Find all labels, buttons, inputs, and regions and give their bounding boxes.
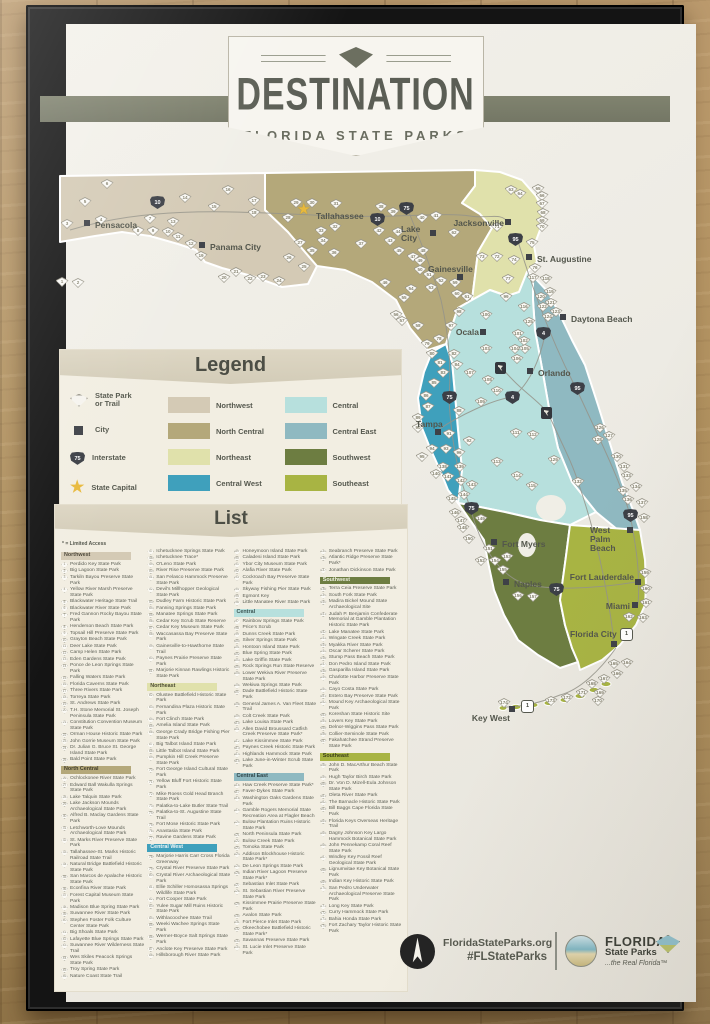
list-item: 5Blackwater Heritage State Trail — [61, 599, 144, 605]
park-name: San Pedro Underwater Archaeological Pres… — [329, 886, 403, 903]
turnpike-shield — [495, 362, 506, 374]
park-name: Cedar Key Museum State Park — [156, 625, 223, 631]
list-item: 115Lake June-in-Winter Scrub State Park — [234, 758, 317, 770]
list-item: 164Florida Keys Overseas Heritage Trail — [320, 819, 403, 831]
list-item-number-diamond: 85 — [147, 923, 154, 929]
list-item: 143Wingate Creek State Park — [320, 636, 403, 642]
park-marker: 84 — [451, 360, 464, 370]
list-item-number-diamond: 74 — [147, 811, 154, 817]
park-marker: 79 — [421, 339, 434, 349]
list-item-number-diamond: 138 — [320, 587, 327, 593]
list-item-number-diamond: 127 — [234, 883, 241, 889]
park-marker: 160 — [640, 584, 653, 594]
park-marker-number: 92 — [463, 438, 476, 443]
park-marker-number: 174 — [498, 700, 511, 705]
park-name: Price's Scrub — [243, 625, 272, 631]
park-name: San Marcos de Apalache Historic State Pa… — [70, 874, 144, 886]
park-name: Stump Pass Beach State Park — [329, 655, 395, 661]
list-item-number-diamond: 141 — [320, 612, 327, 618]
park-marker-number: 27 — [294, 240, 307, 245]
list-item-number-diamond: 116 — [234, 783, 241, 789]
park-marker-number: 168 — [586, 681, 599, 686]
list-item-number-diamond: 117 — [234, 790, 241, 796]
list-item: 123Tomoka State Park — [234, 845, 317, 851]
park-marker: 33 — [315, 226, 328, 236]
park-name: Little Manatee River State Park — [243, 600, 311, 606]
list-item-number-diamond: 8 — [61, 625, 68, 631]
park-name: Topsail Hill Preserve State Park — [70, 631, 139, 637]
park-name: Silver Springs State Park — [243, 638, 297, 644]
city-label: Pensacola — [95, 221, 155, 230]
park-marker-number: 153 — [501, 554, 514, 559]
list-item-number-diamond: 2 — [61, 569, 68, 575]
list-item: 9Topsail Hill Preserve State Park — [61, 631, 144, 637]
list-item-number-diamond: 114 — [234, 752, 241, 758]
list-item-number-diamond: 47 — [147, 549, 154, 555]
park-marker: 21 — [230, 267, 243, 277]
park-name: St. Marks River Preserve State Park — [70, 838, 144, 850]
list-item-number-diamond: 79 — [147, 867, 154, 873]
list-item-number-diamond: 172 — [320, 911, 327, 917]
list-item: 112Lake Kissimmee State Park — [234, 739, 317, 745]
park-marker-number: 156 — [512, 593, 525, 598]
list-item: 173Bahia Honda State Park — [320, 917, 403, 923]
park-marker: 156 — [512, 591, 525, 601]
park-marker-number: 152 — [475, 558, 488, 563]
list-section-header: Central East — [234, 773, 304, 781]
list-item: 113Paynes Creek Historic State Park — [234, 745, 317, 751]
park-name: Highlands Hammock State Park — [243, 752, 312, 758]
park-name: George Crady Bridge Fishing Pier State P… — [156, 730, 230, 742]
list-item-number-diamond: 137 — [320, 568, 327, 574]
park-marker-number: 61 — [461, 294, 474, 299]
park-marker-number: 62 — [448, 230, 461, 235]
city-label: Orlando — [538, 369, 584, 378]
park-list-column: 135Seabranch Preserve State Park136Atlan… — [320, 549, 403, 980]
list-item-number-diamond: 70 — [147, 768, 154, 774]
list-item: 12Camp Helen State Park — [61, 650, 144, 656]
park-name: North Peninsula State Park — [243, 832, 302, 838]
park-marker: 34 — [317, 236, 330, 246]
park-name: O'Leno State Park — [156, 562, 196, 568]
list-item-number-diamond: 13 — [61, 657, 68, 663]
park-name: San Felasco Hammock Preserve State Park — [156, 575, 230, 587]
list-item: 95Egmont Key — [234, 594, 317, 600]
legend-symbol-row: 75Interstate — [70, 452, 168, 465]
park-name: Paynes Prairie Preserve State Park — [156, 656, 230, 668]
park-marker: 132 — [572, 477, 585, 487]
park-name: Judah P. Benjamin Confederate Memorial a… — [329, 612, 403, 629]
park-name: Blue Spring State Park — [243, 651, 292, 657]
park-marker-number: 3 — [61, 221, 74, 226]
park-marker: 26 — [283, 253, 296, 263]
park-marker-number: 57 — [396, 318, 409, 323]
list-item: 171Long Key State Park — [320, 904, 403, 910]
park-marker-number: 154 — [489, 558, 502, 563]
list-item: 166John Pennekamp Coral Reef State Park — [320, 843, 403, 855]
park-marker: 148 — [457, 523, 470, 533]
park-marker-number: 88 — [453, 408, 466, 413]
list-item: 32St. Marks River Preserve State Park — [61, 838, 144, 850]
park-name: Yellow Bluff Fort Historic State Park — [156, 779, 230, 791]
list-item: 109Colt Creek State Park — [234, 714, 317, 720]
list-item-number-diamond: 96 — [234, 600, 241, 606]
list-item-number-diamond: 159 — [320, 775, 327, 781]
park-name: Fort Cooper State Park — [156, 897, 206, 903]
list-item: 23John Gorrie Museum State Park — [61, 739, 144, 745]
park-marker: 24 — [273, 276, 286, 286]
list-item: 93Cockroach Bay Preserve State Park — [234, 575, 317, 587]
park-marker: 85 — [428, 378, 441, 388]
list-item-number-diamond: 22 — [61, 733, 68, 739]
park-name: Orman House Historic State Park — [70, 732, 142, 738]
list-item-number-diamond: 105 — [234, 671, 241, 677]
legend-region-label: Central — [333, 401, 359, 410]
list-item: 58Waccasassa Bay Preserve State Park — [147, 632, 230, 644]
park-marker: 172 — [561, 693, 574, 703]
park-name: Little Talbot Island State Park — [156, 749, 219, 755]
list-item-number-diamond: 20 — [61, 708, 68, 714]
park-marker-number: 48 — [417, 248, 430, 253]
list-section-header: North Central — [61, 766, 131, 774]
list-item-number-diamond: 92 — [234, 569, 241, 575]
park-marker: 2 — [72, 278, 85, 288]
park-marker-number: 96 — [453, 450, 466, 455]
list-item: 40Stephen Foster Folk Culture Center Sta… — [61, 918, 144, 930]
park-name: De Leon Springs State Park — [243, 864, 304, 870]
list-item: 13Eden Gardens State Park — [61, 657, 144, 663]
list-item: 54Fanning Springs State Park — [147, 606, 230, 612]
legend-region-label: Central West — [216, 479, 262, 488]
park-marker-number: 54 — [405, 286, 418, 291]
park-name: Ponce de Leon Springs State Park — [70, 663, 144, 675]
park-name: Ichetucknee Springs State Park — [156, 549, 225, 555]
park-name: Lake Louisa State Park — [243, 720, 294, 726]
footer: FloridaStateParks.org #FLStateParks FLOR… — [400, 925, 668, 977]
list-item-number-diamond: 60 — [147, 656, 154, 662]
city-square-icon — [74, 426, 83, 435]
park-marker-number: 144 — [458, 492, 471, 497]
list-item: 89Honeymoon Island State Park — [234, 549, 317, 555]
park-name: Suwannee River Wilderness State Trail — [70, 943, 144, 955]
park-name: Anastasia State Park — [156, 829, 202, 835]
list-item: 146Stump Pass Beach State Park — [320, 655, 403, 661]
park-marker: 157 — [527, 592, 540, 602]
list-item: 141Judah P. Benjamin Confederate Memoria… — [320, 612, 403, 629]
list-item-number-diamond: 17 — [61, 689, 68, 695]
brand-state-parks: State Parks — [605, 948, 667, 958]
park-marker-number: 158 — [638, 515, 651, 520]
list-item-number-diamond: 25 — [61, 758, 68, 764]
list-item-number-diamond: 56 — [147, 619, 154, 625]
list-item: 136Atlantic Ridge Preserve State Park* — [320, 555, 403, 567]
park-marker-number: 76 — [529, 265, 542, 270]
list-item: 15Falling Waters State Park — [61, 675, 144, 681]
list-section-header: Southwest — [320, 577, 390, 585]
list-item: 162The Barnacle Historic State Park — [320, 800, 403, 806]
list-section-header: Southeast — [320, 753, 390, 761]
list-item-number-diamond: 102 — [234, 652, 241, 658]
park-marker: 6 — [101, 179, 114, 189]
legend-region-row: Southeast — [285, 470, 396, 496]
park-name: Lake Talquin State Park — [70, 795, 122, 801]
park-marker-number: 80 — [426, 351, 439, 356]
park-marker: 81 — [434, 358, 447, 368]
park-name: Werner-Boyce Salt Springs State Park — [156, 934, 230, 946]
park-name: Bulow Creek State Park — [243, 839, 295, 845]
park-marker: 5 — [79, 197, 92, 207]
list-item: 56Cedar Key Scrub State Reserve — [147, 619, 230, 625]
list-item-number-diamond: 53 — [147, 600, 154, 606]
park-marker-number: 134 — [630, 484, 643, 489]
list-item-number-diamond: 28 — [61, 795, 68, 801]
legend-symbol-label: City — [95, 426, 109, 434]
list-item-number-diamond: 61 — [147, 669, 154, 675]
list-item-number-diamond: 39 — [61, 912, 68, 918]
list-item-number-diamond: 38 — [61, 905, 68, 911]
state-capital-star: ★ — [297, 205, 310, 215]
brand-tagline: ...the Real Florida™ — [605, 960, 667, 967]
park-marker: 139 — [454, 462, 467, 472]
list-item-number-diamond: 110 — [234, 721, 241, 727]
park-name: Okeechobee Battlefield Historic State Pa… — [243, 926, 317, 938]
list-item-number-diamond: 162 — [320, 800, 327, 806]
park-name: Fort Mose Historic State Park — [156, 822, 220, 828]
list-item: 47Ichetucknee Springs State Park — [147, 549, 230, 555]
park-name: General James A. Van Fleet State Trail — [243, 702, 317, 714]
park-name: Marjorie Harris Carr Cross Florida Green… — [156, 854, 230, 866]
list-item-number-diamond: 89 — [234, 549, 241, 555]
list-item: 50River Rise Preserve State Park — [147, 568, 230, 574]
list-item-number-diamond: 160 — [320, 782, 327, 788]
park-marker: 118 — [540, 274, 553, 284]
park-marker: 103 — [480, 344, 493, 354]
list-item: 165Dagny Johnson Key Largo Hammock Botan… — [320, 831, 403, 843]
park-marker-number: 95 — [416, 454, 429, 459]
list-item: 35San Marcos de Apalache Historic State … — [61, 874, 144, 886]
park-marker-number: 173 — [545, 698, 558, 703]
park-name: Oleta River State Park — [329, 793, 378, 799]
park-name: Tarkiln Bayou Preserve State Park — [70, 575, 144, 587]
park-marker-number: 126 — [594, 425, 607, 430]
region-swatch — [285, 423, 327, 439]
park-marker-number: 146 — [449, 510, 462, 515]
list-item-number-diamond: 46 — [61, 974, 68, 980]
park-marker: 122 — [537, 302, 550, 312]
park-marker: 35 — [306, 246, 319, 256]
park-marker: 112 — [527, 430, 540, 440]
legend-region-row: Southwest — [285, 444, 396, 470]
park-name: Bahia Honda State Park — [329, 917, 381, 923]
list-item-number-diamond: 120 — [234, 820, 241, 826]
legend-region-row: Central East — [285, 418, 396, 444]
park-name: Fort George Island Cultural State Park — [156, 767, 230, 779]
city-label: Naples — [514, 580, 554, 589]
list-item: 39Suwannee River State Park — [61, 911, 144, 917]
list-item: 140Madira Bickel Mound State Archaeologi… — [320, 599, 403, 611]
list-item-number-diamond: 5 — [61, 600, 68, 606]
park-name: Honeymoon Island State Park — [243, 549, 308, 555]
park-marker-number: 117 — [527, 275, 540, 280]
list-item: 118Washington Oaks Gardens State Park — [234, 796, 317, 808]
list-item-number-diamond: 58 — [147, 632, 154, 638]
park-name: Lafayette Blue Springs State Park — [70, 937, 143, 943]
city-marker — [505, 219, 511, 225]
city-marker — [199, 242, 205, 248]
list-item: 88Hillsborough River State Park — [147, 953, 230, 959]
park-marker-number: 165 — [608, 661, 621, 666]
park-name: Yulee Sugar Mill Ruins Historic State Pa… — [156, 904, 230, 916]
list-item: 38Madison Blue Spring State Park — [61, 905, 144, 911]
park-marker: 99 — [500, 292, 513, 302]
list-item: 98Price's Scrub — [234, 625, 317, 631]
park-name: Grayton Beach State Park — [70, 637, 127, 643]
legend-symbol-label: Interstate — [92, 454, 126, 462]
region-swatch — [168, 475, 210, 491]
list-item: 29Lake Jackson Mounds Archaeological Sta… — [61, 801, 144, 813]
park-name: Fernandina Plaza Historic State Park — [156, 705, 230, 717]
park-marker: 75 — [526, 238, 539, 248]
list-item-number-diamond: 115 — [234, 759, 241, 765]
park-name: Ybor City Museum State Park — [243, 562, 307, 568]
list-item-number-diamond: 84 — [147, 916, 154, 922]
park-marker-number: 86 — [420, 393, 433, 398]
park-marker-number: 41 — [430, 213, 443, 218]
park-marker-number: 1 — [56, 279, 69, 284]
park-name: Big Talbot Island State Park — [156, 742, 216, 748]
list-item-number-diamond: 50 — [147, 569, 154, 575]
list-item: 101Hontoon Island State Park — [234, 645, 317, 651]
park-marker: 105 — [519, 344, 532, 354]
list-item: 53Dudley Farm Historic State Park — [147, 599, 230, 605]
list-item: 144Myakka River State Park — [320, 643, 403, 649]
park-marker: 167 — [598, 674, 611, 684]
park-marker: 78 — [433, 334, 446, 344]
park-marker: 92 — [463, 436, 476, 446]
list-item-number-diamond: 122 — [234, 839, 241, 845]
list-item: 102Blue Spring State Park — [234, 651, 317, 657]
region-swatch — [168, 423, 210, 439]
park-marker-number: 49 — [414, 258, 427, 263]
list-item-number-diamond: 43 — [61, 943, 68, 949]
park-marker-number: 145 — [446, 496, 459, 501]
park-name: Eden Gardens State Park — [70, 657, 126, 663]
park-name: Big Shoals State Park — [70, 930, 118, 936]
park-name: Egmont Key — [243, 594, 270, 600]
park-marker: 110 — [491, 386, 504, 396]
list-item: 105Lower Wekiva River Preserve State Par… — [234, 671, 317, 683]
park-marker: 153 — [501, 552, 514, 562]
list-item: 148Gasparilla Island State Park — [320, 668, 403, 674]
list-item-number-diamond: 99 — [234, 632, 241, 638]
list-item-number-diamond: 132 — [234, 927, 241, 933]
park-marker-number: 107 — [464, 370, 477, 375]
list-item: 126Indian River Lagoon Preserve State Pa… — [234, 870, 317, 882]
list-item-number-diamond: 167 — [320, 855, 327, 861]
list-item: 60Paynes Prairie Preserve State Park — [147, 656, 230, 668]
list-item-number-diamond: 107 — [234, 690, 241, 696]
list-item: 138Terra Ceia Preserve State Park — [320, 586, 403, 592]
park-name: Fred Gannon Rocky Bayou State Park — [70, 612, 144, 624]
park-name: St. Sebastian River Preserve State Park — [243, 889, 317, 901]
park-name: Marjorie Kinnan Rawlings Historic State … — [156, 668, 230, 680]
list-item-number-diamond: 147 — [320, 662, 327, 668]
list-item: 33Tallahassee-St. Marks Historic Railroa… — [61, 850, 144, 862]
capital-star-icon: ★ — [70, 482, 84, 494]
park-name: Myakka River State Park — [329, 643, 383, 649]
park-marker: 136 — [622, 495, 635, 505]
list-item-number-diamond: 9 — [61, 631, 68, 637]
park-marker-number: 160 — [640, 586, 653, 591]
list-item: 66George Crady Bridge Fishing Pier State… — [147, 730, 230, 742]
list-item: 142Lake Manatee State Park — [320, 630, 403, 636]
list-item-number-diamond: 19 — [61, 702, 68, 708]
region-swatch — [168, 397, 210, 413]
list-item-number-diamond: 3 — [61, 575, 68, 581]
city-label: Miami — [597, 602, 630, 611]
park-marker: 1 — [56, 277, 69, 287]
list-item-number-diamond: 54 — [147, 606, 154, 612]
list-item: 3Tarkiln Bayou Preserve State Park — [61, 575, 144, 587]
park-marker: 14 — [179, 193, 192, 203]
park-name: Cayo Costa State Park — [329, 687, 379, 693]
list-item: 59Gainesville-to-Hawthorne State Trail — [147, 644, 230, 656]
park-name: Forest Capital Museum State Park — [70, 893, 144, 905]
park-name: Blackwater Heritage State Trail — [70, 599, 137, 605]
list-item-number-diamond: 173 — [320, 917, 327, 923]
list-panel: List * = Limited Access Northwest1Perdid… — [55, 505, 407, 991]
park-marker-number: 102 — [518, 338, 531, 343]
list-item: 24Dr. Julian G. Bruce St. George Island … — [61, 745, 144, 757]
legend-region-label: North Central — [216, 427, 264, 436]
park-name: John Gorrie Museum State Park — [70, 739, 140, 745]
park-marker-number: 85 — [428, 380, 441, 385]
list-item: 172Curry Hammock State Park — [320, 910, 403, 916]
list-item: 132Okeechobee Battlefield Historic State… — [234, 926, 317, 938]
list-item-number-diamond: 48 — [147, 556, 154, 562]
list-item: 159Hugh Taylor Birch State Park — [320, 775, 403, 781]
list-item-number-diamond: 100 — [234, 639, 241, 645]
list-item: 48Ichetucknee Trace* — [147, 555, 230, 561]
park-name: Suwannee River State Park — [70, 911, 130, 917]
park-marker: 62 — [448, 228, 461, 238]
list-item: 160Dr. Von D. Mizell-Eula Johnson State … — [320, 781, 403, 793]
park-marker: 57 — [396, 316, 409, 326]
park-marker-number: 155 — [497, 567, 510, 572]
city-label: Jacksonville — [444, 219, 504, 228]
list-item-number-diamond: 63 — [147, 705, 154, 711]
list-item: 55Manatee Springs State Park — [147, 612, 230, 618]
list-item-number-diamond: 49 — [147, 562, 154, 568]
list-item: 70Fort George Island Cultural State Park — [147, 767, 230, 779]
park-marker: 42 — [373, 226, 386, 236]
list-item: 80Crystal River Archaeological State Par… — [147, 873, 230, 885]
list-item: 99Dunns Creek State Park — [234, 632, 317, 638]
city-marker — [509, 706, 515, 712]
park-marker-number: 73 — [476, 254, 489, 259]
park-marker: 82 — [448, 349, 461, 359]
park-name: Rock Springs Run State Reserve — [243, 664, 315, 670]
list-item-number-diamond: 23 — [61, 739, 68, 745]
list-item-number-diamond: 44 — [61, 956, 68, 962]
city-label: Tallahassee — [316, 212, 380, 221]
city-marker — [560, 314, 566, 320]
list-item: 163Bill Baggs Cape Florida State Park — [320, 806, 403, 818]
park-name: Avalon State Park — [243, 913, 282, 919]
legend-symbol-row: State Park or Trail — [70, 392, 168, 409]
list-item: 11Deer Lake State Park — [61, 644, 144, 650]
list-item: 156Collier-Seminole State Park — [320, 732, 403, 738]
